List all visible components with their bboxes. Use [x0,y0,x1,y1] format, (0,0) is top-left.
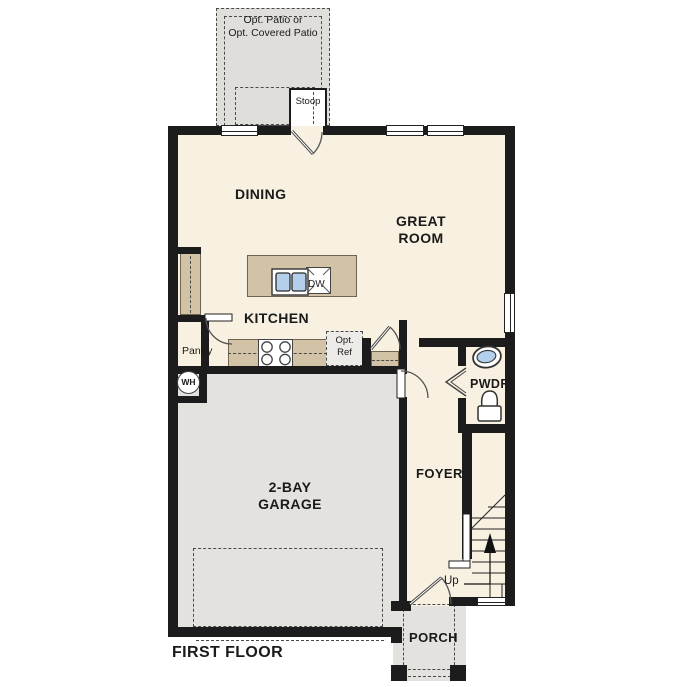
powder-sink [471,344,502,370]
opt-patio-label-line2: Opt. Covered Patio [216,27,330,40]
kitchen-label: KITCHEN [244,310,309,326]
opt-patio-label: Opt. Patio or Opt. Covered Patio [216,14,330,40]
garage-entry-door [397,369,428,398]
toilet [478,391,501,421]
rear-door [292,131,322,154]
up-label: Up [444,575,459,587]
great-room-label-line2: ROOM [385,230,457,247]
closet-door [371,327,400,349]
pantry-label: Pantry [182,345,212,357]
dining-label: DINING [235,186,286,202]
stove-burners [262,342,290,365]
great-room-label: GREAT ROOM [385,213,457,247]
stoop-label: Stoop [289,96,327,107]
foyer-label: FOYER [416,466,463,481]
first-floor-title: FIRST FLOOR [172,644,283,662]
garage-label-line2: GARAGE [250,496,330,513]
garage-label: 2-BAY GARAGE [250,479,330,513]
kitchen-sink [272,269,308,295]
water-heater-label: WH [181,377,195,387]
pantry-door [205,314,232,344]
powder-label: PWDR [470,377,510,391]
dw-label: DW [308,279,325,290]
great-room-label-line1: GREAT [385,213,457,230]
garage-label-line1: 2-BAY [250,479,330,496]
powder-door [446,368,466,396]
water-heater: WH [177,371,200,394]
porch-label: PORCH [409,630,458,645]
first-floor-plan: Opt. Ref [0,0,687,687]
opt-patio-label-line1: Opt. Patio or [216,14,330,27]
floorplan-annotations [0,0,687,687]
